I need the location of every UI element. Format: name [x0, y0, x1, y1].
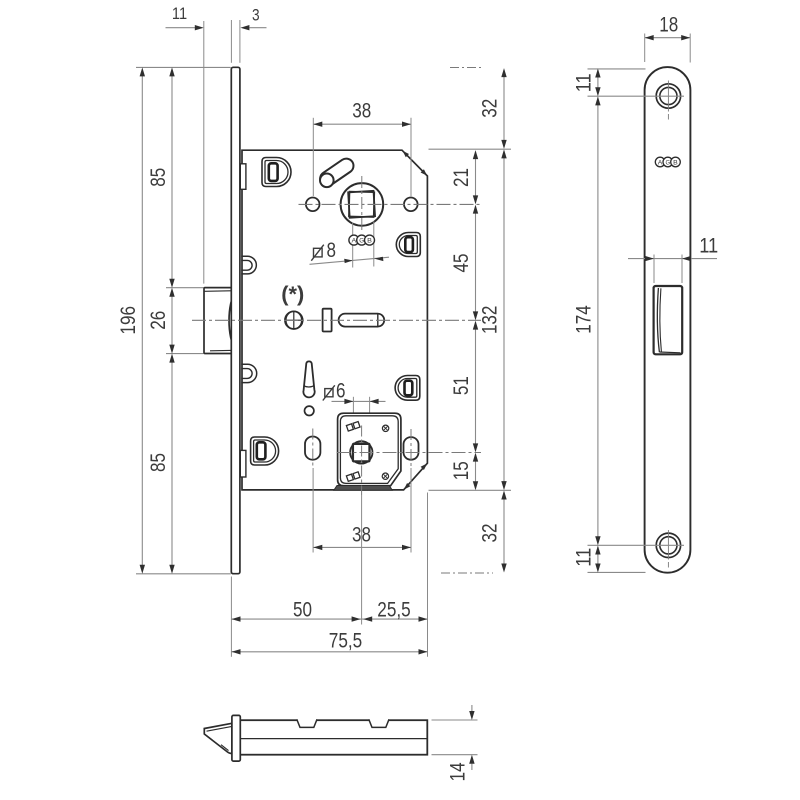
- svg-text:38: 38: [352, 100, 371, 123]
- svg-text:8: 8: [327, 239, 337, 262]
- svg-text:14: 14: [447, 762, 470, 781]
- svg-text:21: 21: [450, 168, 473, 187]
- svg-text:G: G: [359, 238, 364, 245]
- svg-text:51: 51: [450, 376, 473, 395]
- svg-text:38: 38: [352, 524, 371, 547]
- svg-text:174: 174: [573, 305, 596, 334]
- svg-text:50: 50: [293, 598, 312, 621]
- svg-text:32: 32: [479, 99, 502, 118]
- svg-text:11: 11: [172, 4, 187, 23]
- svg-text:3: 3: [252, 6, 260, 25]
- svg-text:A: A: [658, 160, 663, 166]
- svg-text:11: 11: [699, 235, 718, 258]
- svg-text:B: B: [367, 238, 372, 245]
- svg-text:45: 45: [450, 254, 473, 273]
- svg-text:75,5: 75,5: [329, 630, 363, 653]
- svg-text:6: 6: [336, 380, 346, 403]
- svg-text:85: 85: [147, 168, 170, 187]
- svg-text:11: 11: [573, 548, 596, 567]
- svg-text:85: 85: [147, 453, 170, 472]
- svg-text:B: B: [673, 160, 678, 166]
- svg-text:11: 11: [573, 73, 596, 92]
- svg-text:G: G: [666, 160, 671, 166]
- svg-text:196: 196: [117, 306, 140, 335]
- svg-text:132: 132: [479, 306, 502, 335]
- svg-text:18: 18: [659, 14, 678, 37]
- svg-text:25,5: 25,5: [377, 598, 411, 621]
- svg-text:26: 26: [147, 311, 170, 330]
- svg-text:15: 15: [450, 461, 473, 480]
- svg-text:(*): (*): [281, 283, 304, 306]
- svg-text:32: 32: [479, 524, 502, 543]
